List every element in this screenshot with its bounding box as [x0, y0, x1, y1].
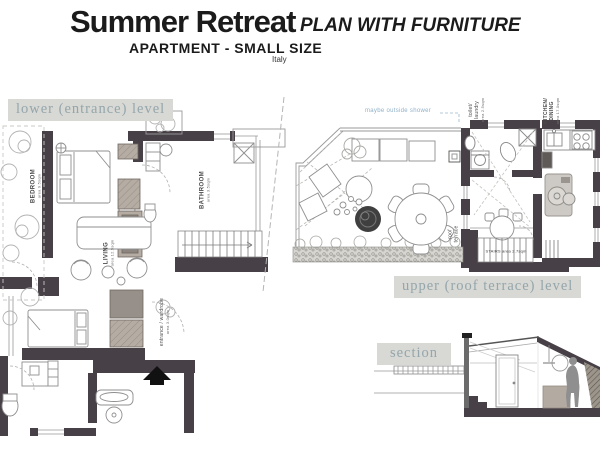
section-structure	[462, 333, 600, 417]
dining-table-set	[387, 184, 456, 254]
plan-drawing-canvas	[0, 0, 600, 460]
potted-tree	[355, 206, 381, 232]
kitchen-dining-area: area 17.0sqm	[555, 98, 560, 125]
plan-break-line	[263, 97, 284, 292]
floor-plan-sheet: Summer Retreat PLAN WITH FURNITURE APART…	[0, 0, 600, 460]
living-label: LIVING area 12.5sqm	[103, 240, 114, 267]
bathroom-area: area 3.5sqm	[206, 178, 211, 202]
page-title: Summer Retreat	[70, 4, 295, 40]
entrance-area: area 3.0sqm	[166, 310, 171, 334]
section-band: section	[377, 343, 451, 365]
living-area: area 12.5sqm	[110, 240, 115, 267]
lower-level-band: lower (entrance) level	[8, 99, 173, 121]
kitchen-fixtures	[542, 129, 595, 258]
hall-table-set	[485, 209, 522, 240]
toilet-laundry-area: area 2.5sqm	[480, 98, 485, 122]
page-subtitle: APARTMENT - SMALL SIZE	[129, 40, 322, 56]
outside-shower-note: maybe outside shower	[365, 108, 431, 114]
stairs-label: STAIRS area 2.7sqm	[485, 249, 526, 254]
bedroom-furniture	[56, 143, 160, 217]
section-ground-lines	[374, 366, 464, 393]
upper-level-band: upper (roof terrace) level	[394, 276, 581, 298]
roof-terrace-label: roof terrace	[448, 226, 460, 243]
toilet-laundry-fixtures	[465, 129, 536, 169]
bathroom-label: BATHROOM area 3.5sqm	[199, 171, 210, 209]
lower-plan-drawing	[0, 111, 285, 436]
country-label: Italy	[272, 55, 287, 64]
terrace-planter	[293, 236, 463, 262]
roof-terrace-line2: terrace	[454, 226, 460, 243]
section-interior	[496, 345, 570, 408]
bedroom-area: area 9.5sqm	[37, 174, 42, 198]
lower-stairs	[178, 231, 262, 257]
bedroom-label: BEDROOM area 9.5sqm	[30, 169, 41, 203]
upper-plan-drawing	[293, 113, 600, 272]
toilet-laundry-label: toilet/ laundry area 2.5sqm	[469, 98, 485, 122]
page-tagline: PLAN WITH FURNITURE	[300, 15, 521, 37]
kitchen-dining-label: KITCHEN/ DINING area 17.0sqm	[544, 98, 560, 125]
entrance-label: entrance / wardrobe area 3.0sqm	[160, 298, 170, 346]
